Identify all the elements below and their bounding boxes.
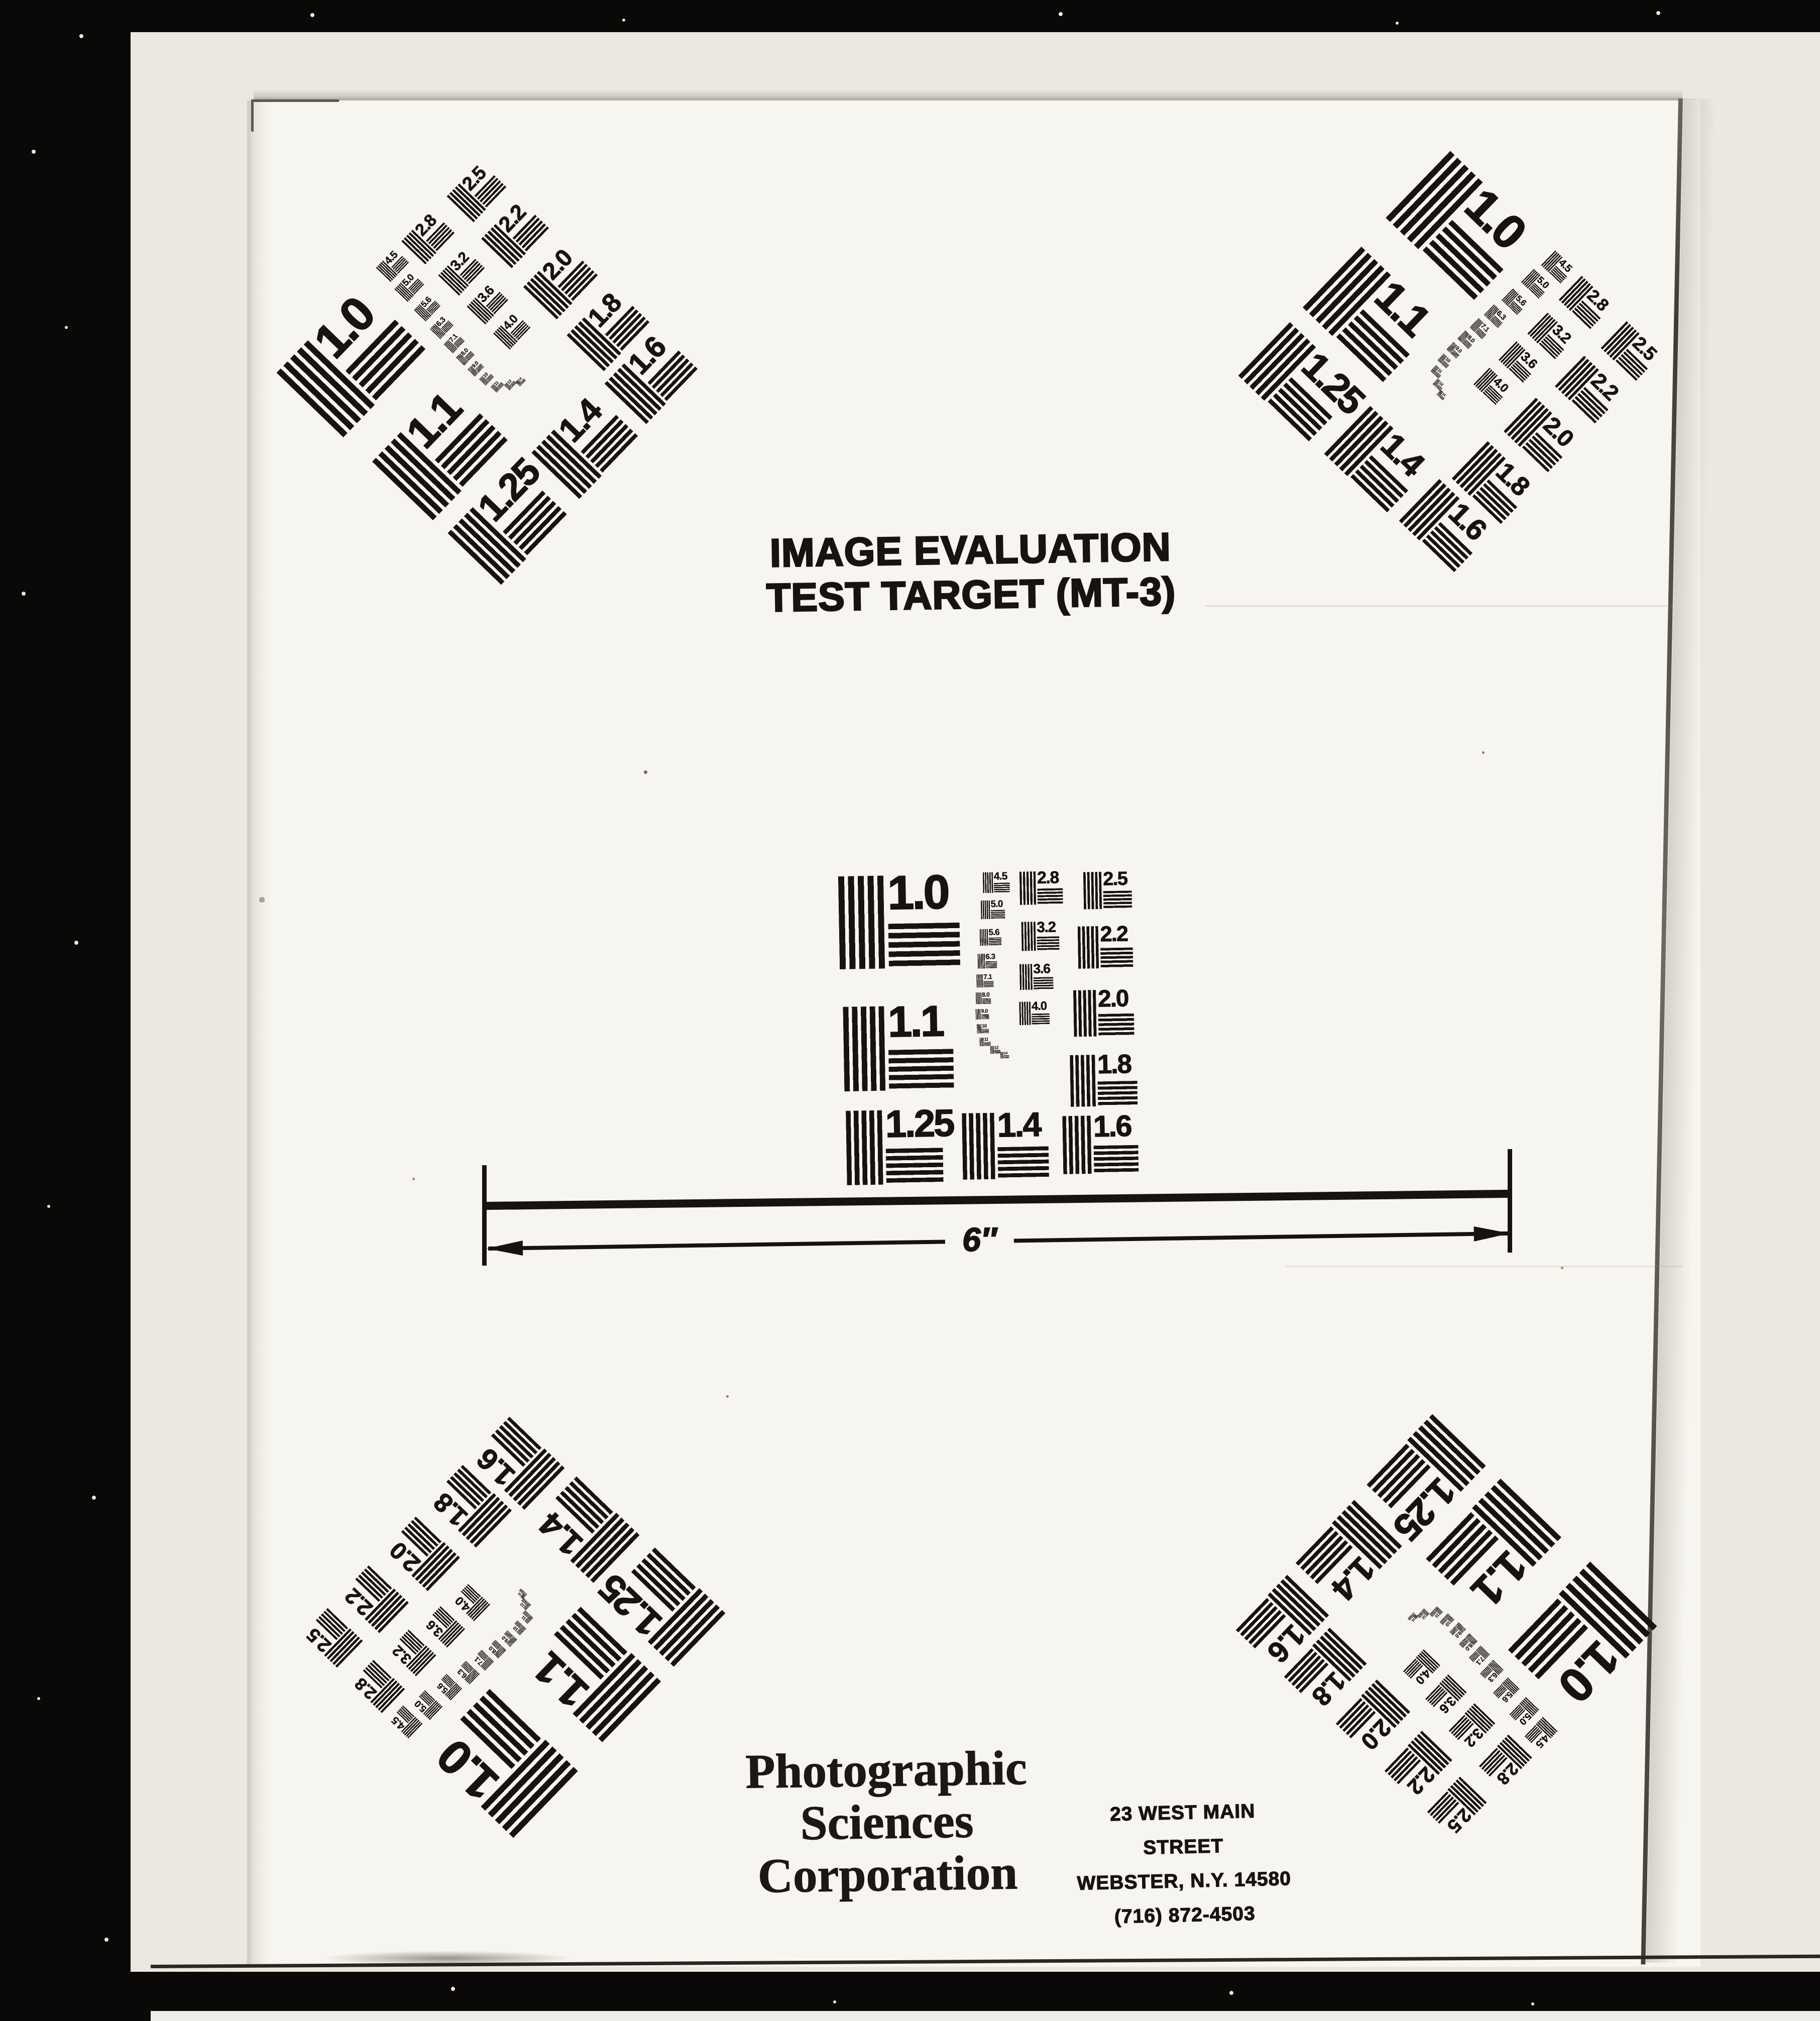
resolution-patch-1.0: 1.0 <box>838 874 960 969</box>
horizontal-bars <box>994 1050 1000 1054</box>
vertical-bars <box>458 1493 512 1548</box>
horizontal-bars <box>982 998 991 1004</box>
patch-value-label: 3.6 <box>1033 962 1050 975</box>
horizontal-bars <box>888 1049 954 1090</box>
company-logo-text: Photographic Sciences Corporation <box>725 1742 1049 1902</box>
patch-value-label: 2.5 <box>1103 869 1127 888</box>
arrowhead-right-icon <box>1474 1226 1510 1242</box>
dust-specks-dark <box>0 0 2 2</box>
patch-value-label: 7.1 <box>983 973 992 980</box>
resolution-patch-14: 14 <box>1000 1052 1009 1059</box>
address-line-1: 23 WEST MAIN STREET <box>1072 1793 1294 1867</box>
resolution-patch-1.1: 1.1 <box>843 1005 954 1091</box>
vertical-bars <box>1452 441 1506 496</box>
title-block: IMAGE EVALUATION TEST TARGET (MT-3) <box>759 524 1183 620</box>
horizontal-bars <box>998 1146 1050 1179</box>
measure-end-bar-left <box>482 1165 487 1266</box>
vertical-bars <box>981 901 990 919</box>
resolution-patch-12: 12 <box>519 1598 531 1611</box>
vertical-bars <box>1408 1731 1452 1775</box>
vertical-bars <box>1078 926 1099 969</box>
resolution-patch-4.0: 4.0 <box>452 1584 490 1621</box>
company-line-3: Corporation <box>727 1846 1049 1902</box>
horizontal-bars <box>1037 936 1059 950</box>
address-line-2: WEBSTER, N.Y. 14580 <box>1073 1862 1295 1901</box>
horizontal-bars <box>981 1015 989 1020</box>
resolution-patch-11: 11 <box>519 1610 533 1624</box>
resolution-patch-8.0: 8.0 <box>976 992 991 1004</box>
sheet-left-edge <box>247 100 270 1966</box>
measure-length-label: 6″ <box>945 1222 1014 1258</box>
resolution-patch-3.6: 3.6 <box>1425 1674 1466 1717</box>
resolution-patch-5.6: 5.6 <box>980 929 1001 946</box>
patch-value-label: 11 <box>984 1037 988 1042</box>
horizontal-bars <box>1034 977 1054 989</box>
resolution-patch-1.6: 1.6 <box>1063 1115 1139 1174</box>
vertical-bars <box>980 1038 984 1046</box>
resolution-patch-3.2: 3.2 <box>389 1629 436 1676</box>
scanner-bed-bottom <box>131 1972 1820 2011</box>
horizontal-bars <box>994 883 1010 893</box>
resolution-patch-2.0: 2.0 <box>1073 989 1134 1037</box>
patch-value-label: 2.8 <box>1037 869 1059 886</box>
sheet-corner-mark <box>251 99 254 132</box>
resolution-patch-3.6: 3.6 <box>423 1606 465 1647</box>
company-line-2: Sciences <box>726 1793 1048 1850</box>
resolution-patch-11: 11 <box>1430 365 1444 379</box>
horizontal-bars <box>1094 1145 1139 1174</box>
resolution-patch-3.2: 3.2 <box>1527 312 1574 360</box>
resolution-patch-11: 11 <box>980 1038 991 1046</box>
resolution-patch-9.0: 9.0 <box>975 1009 989 1020</box>
resolution-patch-5.6: 5.6 <box>1502 288 1529 315</box>
vertical-bars <box>1447 1776 1487 1815</box>
title-line-1: IMAGE EVALUATION <box>759 524 1182 575</box>
vertical-bars <box>1019 964 1033 990</box>
resolution-patch-3.2: 3.2 <box>1021 921 1059 951</box>
resolution-patch-5.0: 5.0 <box>981 900 1005 919</box>
vertical-bars <box>1361 1679 1410 1728</box>
vertical-bars <box>1536 1717 1557 1738</box>
resolution-patch-3.6: 3.6 <box>1019 963 1054 990</box>
resolution-patch-8.0: 8.0 <box>1459 1633 1477 1652</box>
resolution-patch-8.0: 8.0 <box>487 1640 506 1658</box>
resolution-patch-14: 14 <box>517 1589 528 1599</box>
resolution-patch-11: 11 <box>1429 1606 1443 1620</box>
patch-value-label: 5.0 <box>990 899 1002 909</box>
patch-value-label: 1.6 <box>1093 1111 1131 1142</box>
vertical-bars <box>1019 871 1036 905</box>
patch-value-label: 14 <box>1004 1051 1007 1055</box>
resolution-patch-9.0: 9.0 <box>500 1630 517 1647</box>
vertical-bars <box>411 1542 460 1591</box>
horizontal-bars <box>1032 1014 1050 1025</box>
resolution-patch-9.0: 9.0 <box>1446 342 1463 359</box>
resolution-patch-3.6: 3.6 <box>467 282 508 324</box>
patch-value-label: 1.25 <box>885 1104 953 1144</box>
resolution-patch-2.8: 2.8 <box>1019 871 1063 905</box>
patch-value-label: 12 <box>994 1045 998 1049</box>
patch-value-label: 1.4 <box>997 1108 1041 1143</box>
resolution-patch-4.0: 4.0 <box>1403 1649 1440 1687</box>
patch-value-label: 6.3 <box>985 953 995 960</box>
company-address-block: 23 WEST MAIN STREET WEBSTER, N.Y. 14580 … <box>1072 1793 1296 1935</box>
resolution-patch-6.3: 6.3 <box>977 954 997 969</box>
resolution-patch-11: 11 <box>491 379 504 392</box>
vertical-bars <box>975 1009 980 1020</box>
scanner-bed-bottom <box>131 2011 153 2021</box>
resolution-patch-5.0: 5.0 <box>412 1690 442 1720</box>
resolution-patch-10: 10 <box>1437 354 1452 369</box>
resolution-patch-5.6: 5.6 <box>435 1673 462 1701</box>
patch-value-label: 5.6 <box>988 928 999 936</box>
test-target-center: 1.01.11.251.41.61.82.02.22.52.83.23.64.0… <box>834 868 1135 1174</box>
resolution-patch-10: 10 <box>479 371 494 386</box>
scanner-bed-left <box>0 0 131 2021</box>
arrowhead-left-icon <box>487 1241 523 1256</box>
resolution-patch-3.2: 3.2 <box>1448 1703 1496 1750</box>
resolution-patch-3.6: 3.6 <box>1499 341 1541 383</box>
resolution-patch-5.6: 5.6 <box>414 294 441 321</box>
resolution-patch-8.0: 8.0 <box>1457 330 1476 349</box>
resolution-patch-14: 14 <box>1436 390 1447 400</box>
vertical-bars <box>1073 990 1097 1037</box>
resolution-patch-12: 12 <box>504 378 516 391</box>
vertical-bars <box>980 929 988 946</box>
vertical-bars <box>962 1113 995 1180</box>
patch-value-label: 2.0 <box>1098 986 1128 1011</box>
title-line-2: TEST TARGET (MT-3) <box>760 569 1182 620</box>
horizontal-bars <box>983 981 993 987</box>
resolution-patch-10: 10 <box>977 1024 989 1034</box>
resolution-patch-10: 10 <box>1439 1613 1454 1628</box>
vertical-bars <box>990 1046 994 1054</box>
sheet-top-edge <box>254 89 1682 100</box>
vertical-bars <box>976 992 982 1004</box>
vertical-bars <box>1439 1674 1466 1702</box>
resolution-patch-4.0: 4.0 <box>1019 1001 1050 1025</box>
resolution-patch-5.0: 5.0 <box>1521 269 1551 299</box>
horizontal-bars <box>982 1029 989 1033</box>
paper-streak <box>1286 1266 1682 1267</box>
horizontal-bars <box>1097 1081 1137 1106</box>
resolution-patch-2.2: 2.2 <box>1078 926 1133 969</box>
resolution-patch-14: 14 <box>515 376 526 387</box>
resolution-patch-14: 14 <box>1408 1612 1418 1623</box>
patch-value-label: 1.8 <box>1097 1051 1131 1078</box>
address-line-3: (716) 872-4503 <box>1074 1896 1296 1935</box>
resolution-patch-1.8: 1.8 <box>1070 1054 1137 1107</box>
patch-value-label: 1.0 <box>887 868 949 917</box>
resolution-patch-12: 12 <box>990 1046 1000 1054</box>
horizontal-bars <box>985 961 997 968</box>
vertical-bars <box>843 1006 886 1091</box>
horizontal-bars <box>1103 890 1131 909</box>
vertical-bars <box>1465 1703 1496 1733</box>
vertical-bars <box>838 876 885 970</box>
vertical-bars <box>977 1024 981 1034</box>
vertical-bars <box>1416 1649 1440 1673</box>
vertical-bars <box>846 1110 883 1185</box>
paper-streak <box>1205 605 1672 607</box>
resolution-patch-5.6: 5.6 <box>1493 1677 1520 1705</box>
horizontal-bars <box>991 910 1005 919</box>
scanner-bed-top <box>0 0 1820 32</box>
resolution-patch-3.2: 3.2 <box>438 249 485 296</box>
patch-value-label: 8.0 <box>982 991 989 997</box>
horizontal-bars <box>984 1042 991 1046</box>
patch-value-label: 2.2 <box>1100 923 1127 945</box>
resolution-patch-9.0: 9.0 <box>1449 1622 1466 1639</box>
resolution-patch-1.25: 1.25 <box>846 1109 944 1185</box>
resolution-patch-4.5: 4.5 <box>983 872 1010 893</box>
vertical-bars <box>983 872 993 893</box>
scan-bottom-strip <box>151 2011 1820 2021</box>
vertical-bars <box>976 974 983 987</box>
resolution-patch-5.0: 5.0 <box>1509 1697 1539 1727</box>
patch-value-label: 3.2 <box>1037 920 1056 935</box>
vertical-bars <box>1070 1055 1096 1107</box>
patch-value-label: 1.1 <box>888 1000 944 1044</box>
horizontal-bars <box>1098 1014 1134 1036</box>
vertical-bars <box>1504 398 1552 447</box>
patch-value-label: 4.0 <box>1032 1000 1047 1012</box>
horizontal-bars <box>1004 1055 1009 1058</box>
horizontal-bars <box>989 938 1002 946</box>
sheet-corner-mark <box>251 99 339 102</box>
vertical-bars <box>1000 1052 1004 1058</box>
patch-value-label: 9.0 <box>981 1008 988 1014</box>
resolution-patch-2.5: 2.5 <box>1083 871 1132 910</box>
horizontal-bars <box>1037 888 1063 905</box>
horizontal-bars <box>888 923 960 968</box>
resolution-patch-10: 10 <box>511 1620 526 1635</box>
resolution-patch-4.0: 4.0 <box>1473 368 1511 405</box>
resolution-patch-7.1: 7.1 <box>976 974 993 988</box>
resolution-patch-4.0: 4.0 <box>493 311 531 349</box>
resolution-patch-12: 12 <box>1417 1608 1430 1621</box>
resolution-patch-5.0: 5.0 <box>394 272 424 302</box>
company-line-1: Photographic <box>725 1742 1047 1799</box>
vertical-bars <box>1019 1001 1031 1025</box>
horizontal-bars <box>886 1148 944 1184</box>
vertical-bars <box>1063 1115 1092 1174</box>
resolution-patch-12: 12 <box>1432 378 1445 391</box>
vertical-bars <box>1497 1734 1532 1769</box>
vertical-bars <box>977 954 985 969</box>
horizontal-bars <box>1100 948 1133 968</box>
resolution-patch-1.4: 1.4 <box>962 1112 1049 1180</box>
patch-value-label: 10 <box>982 1024 987 1029</box>
vertical-bars <box>1083 872 1102 910</box>
patch-value-label: 4.5 <box>993 871 1007 882</box>
vertical-bars <box>1021 922 1036 951</box>
vertical-bars <box>1312 1628 1367 1681</box>
